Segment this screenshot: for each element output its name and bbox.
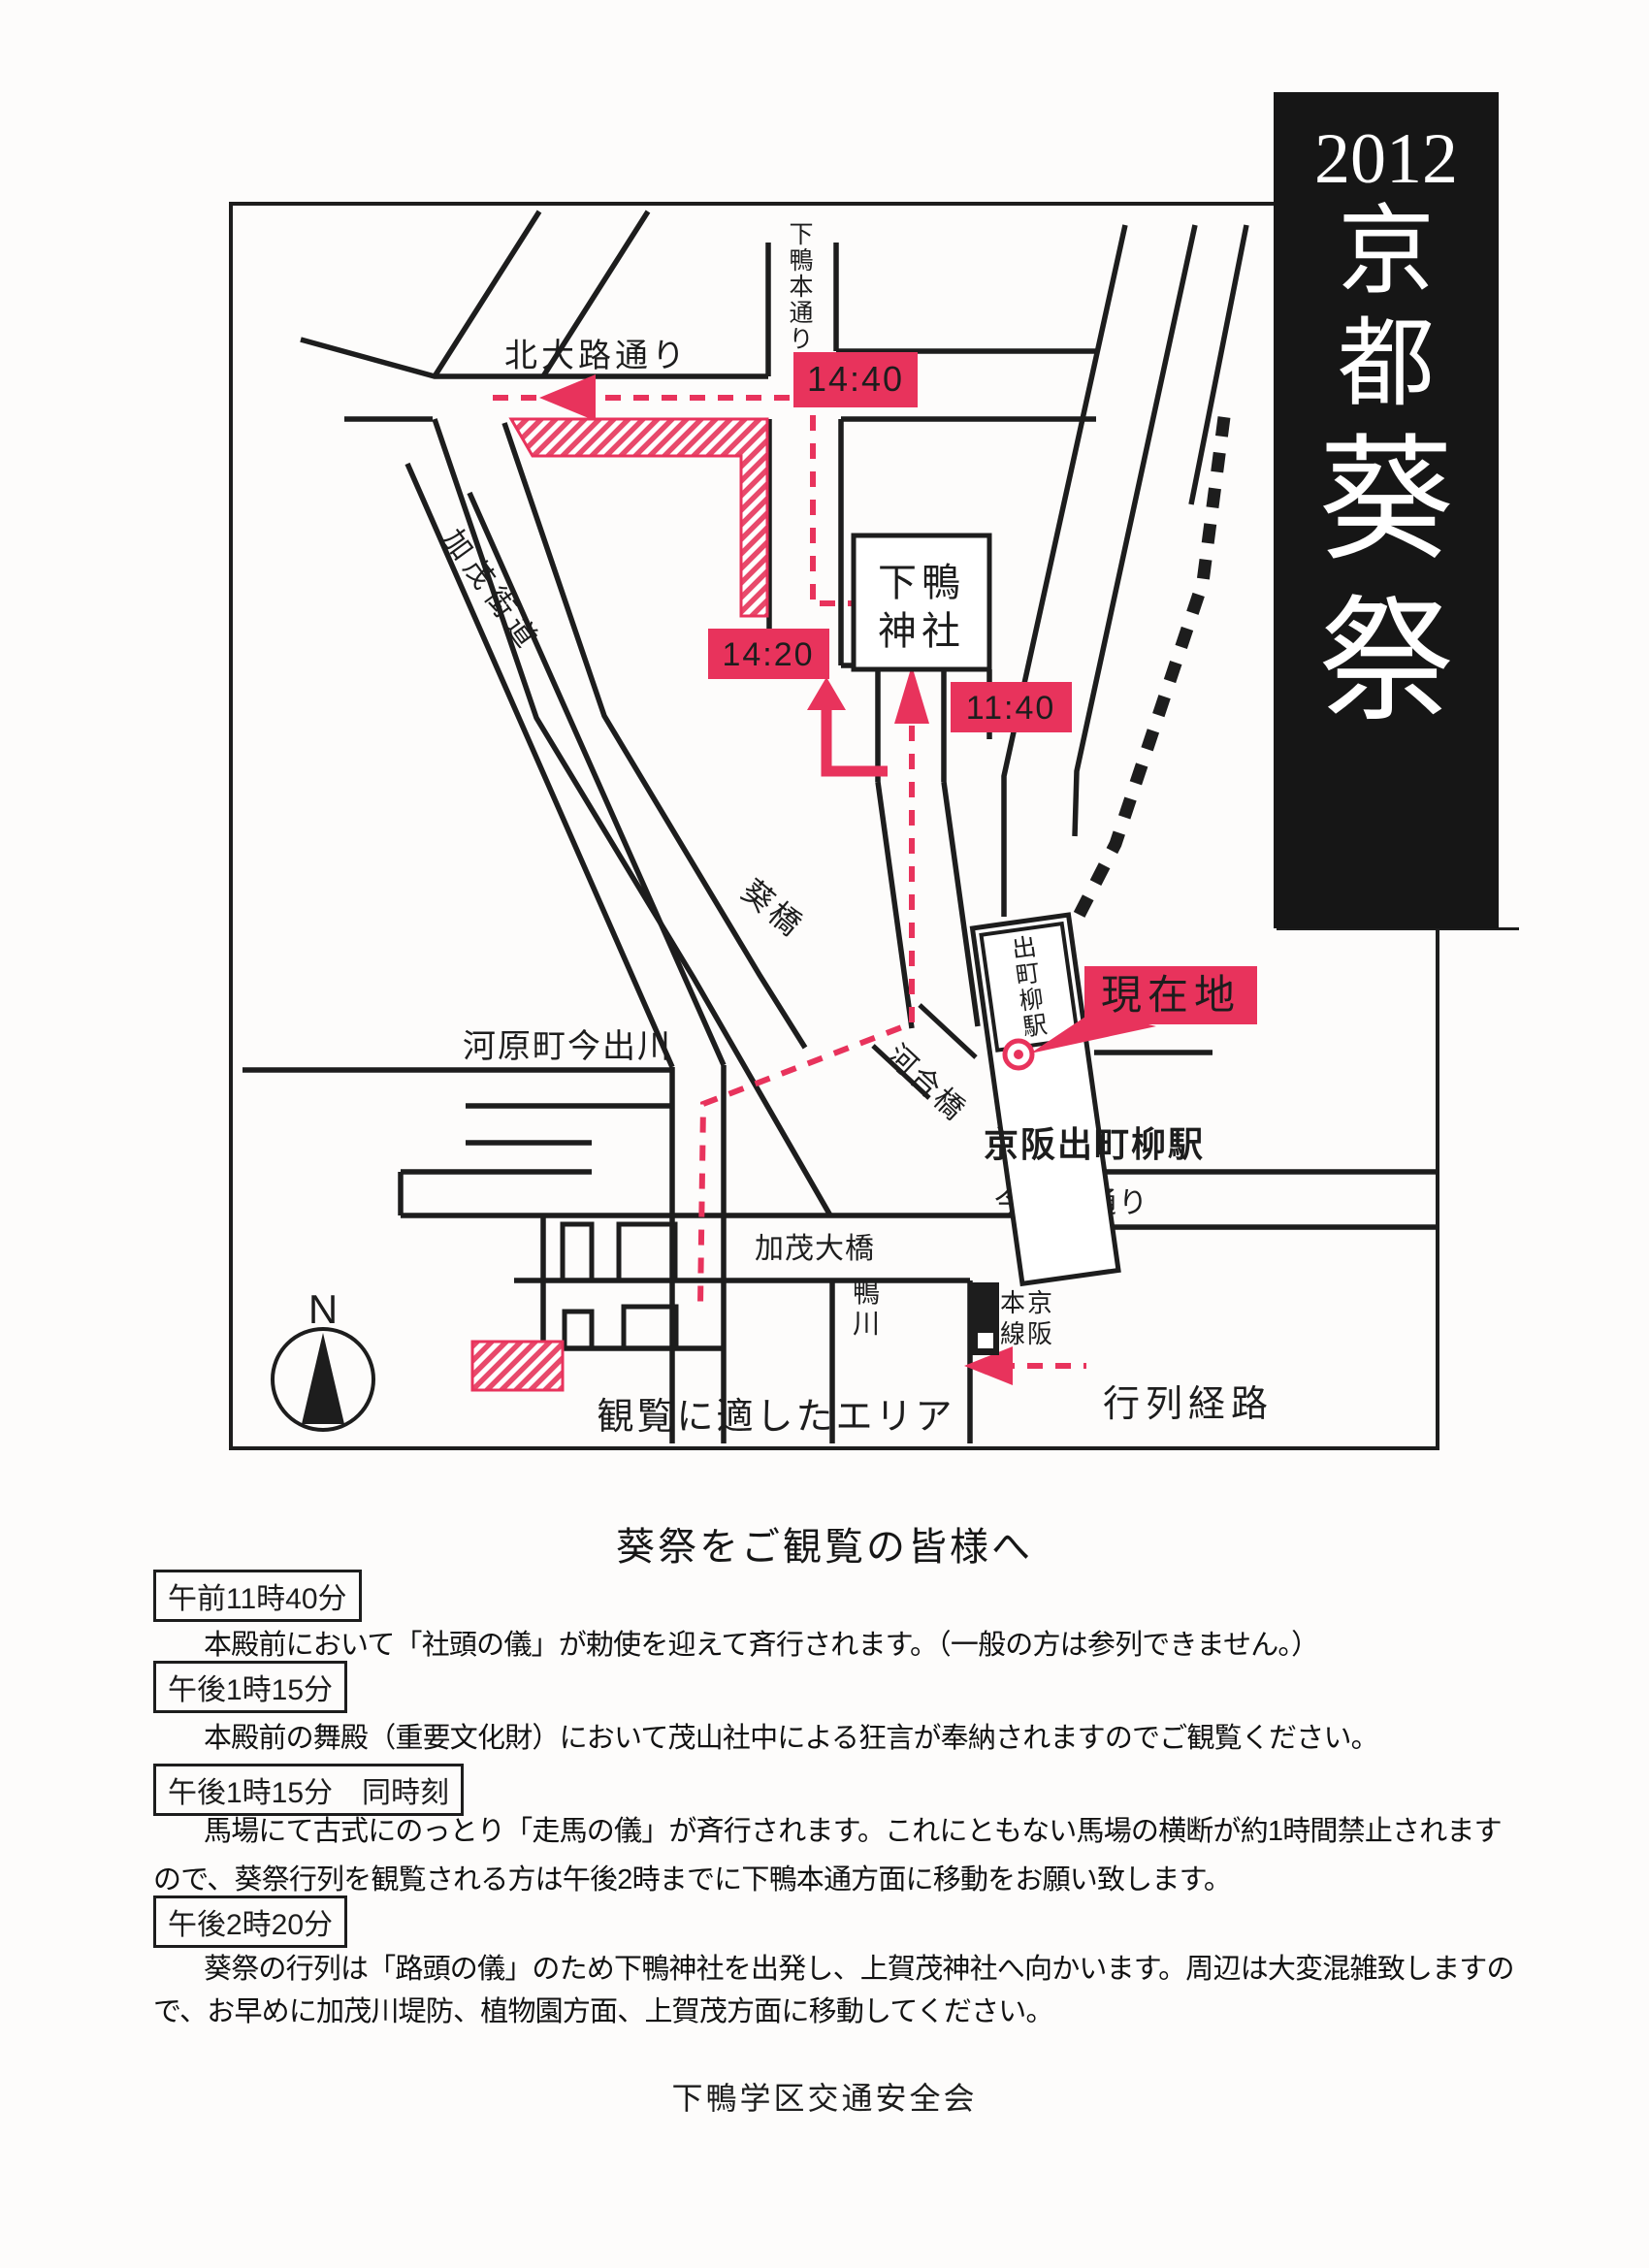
arrow-up-shrine-icon (894, 665, 929, 724)
label-char: 京 (1027, 1288, 1052, 1317)
genzaichi-label: 現在地 (1101, 972, 1241, 1018)
banner-char-aoi: 葵 (1318, 420, 1454, 581)
badge-1140-label: 11:40 (966, 690, 1056, 727)
banner-char-kyo: 京 (1338, 195, 1435, 308)
label-char: 川 (853, 1309, 880, 1339)
label-kitaoji: 北大路通り (504, 338, 689, 374)
notice-heading: 葵祭をご観覧の皆様へ (0, 1515, 1649, 1571)
notice-line: 馬場にて古式にのっとり「走馬の儀」が斉行されます。これにともない馬場の横断が約1… (204, 1808, 1502, 1849)
notice-line: 本殿前の舞殿（重要文化財）において茂山社中による狂言が奉納されますのでご観覧くだ… (204, 1715, 1378, 1756)
banner-year: 2012 (1314, 123, 1458, 195)
banner-char-matsuri: 祭 (1318, 581, 1454, 742)
notice-line: 本殿前において「社頭の儀」が勅使を迎えて斉行されます。（一般の方は参列できません… (204, 1622, 1318, 1663)
time-box-1: 午前11時40分 (153, 1570, 362, 1622)
time-box-4: 午後2時20分 (153, 1895, 347, 1948)
time-box-2: 午後1時15分 (153, 1661, 347, 1713)
road-kawaramachi (407, 464, 724, 1443)
label-keihan-honsen: 京 阪 本 線 (1000, 1288, 1052, 1348)
label-shimogamo-hondori: 下 鴨 本 通 り (789, 221, 813, 353)
label-kawaibashi: 河合橋 (880, 1039, 972, 1128)
label-char: 下 (789, 221, 813, 248)
notice-line: 葵祭の行列は「路頭の儀」のため下鴨神社を出発し、上賀茂神社へ向かいます。周辺は大… (204, 1946, 1514, 1987)
compass-icon: N (273, 1286, 373, 1430)
legend-route-label: 行列経路 (1103, 1384, 1274, 1425)
keihan-station-notch (978, 1333, 993, 1348)
genzaichi-marker-dot (1014, 1050, 1023, 1059)
arrow-up-depart-icon (807, 677, 846, 710)
parade-route (493, 398, 1086, 1366)
banner-char-to: 都 (1338, 308, 1435, 420)
year-banner: 2012 京 都 葵 祭 (1274, 92, 1499, 928)
label-char: 阪 (1027, 1319, 1052, 1348)
label-keihan-demachiyanagi: 京阪出町柳駅 (984, 1124, 1205, 1164)
label-char: 鴨 (789, 247, 813, 275)
viewing-area-hatch-north (511, 419, 767, 616)
label-char: 本 (1000, 1288, 1025, 1317)
road-kitaoji (301, 340, 1096, 419)
viewing-area-hatch-legend (472, 1342, 563, 1390)
label-char: 駅 (1021, 1011, 1050, 1041)
badge-1440-label: 14:40 (807, 359, 904, 399)
label-char: 鴨 (853, 1278, 880, 1308)
compass-north-label: N (308, 1286, 338, 1332)
label-char: 通 (789, 300, 813, 327)
shimogamo-shrine-line1: 下鴨 (878, 562, 965, 604)
shimogamo-shrine-line2: 神社 (878, 610, 965, 653)
notice-line: で、お早めに加茂川堤防、植物園方面、上賀茂方面に移動してください。 (153, 1989, 1053, 2029)
label-char: り (789, 326, 813, 353)
legend-viewing-area-label: 観覧に適したエリア (597, 1397, 954, 1438)
arrow-west-icon (539, 374, 596, 421)
city-blocks (563, 1224, 676, 1348)
badge-1420-label: 14:20 (722, 636, 814, 673)
label-kawaramachi-imadegawa: 河原町今出川 (463, 1028, 672, 1065)
notice-line: ので、葵祭行列を観覧される方は午後2時までに下鴨本通方面に移動をお願い致します。 (153, 1857, 1231, 1897)
notice-footer: 下鴨学区交通安全会 (0, 2074, 1649, 2119)
label-char: 本 (789, 274, 813, 301)
label-char: 線 (1000, 1319, 1025, 1348)
label-kamo-ohashi: 加茂大橋 (755, 1233, 875, 1265)
label-kamogawa: 鴨 川 (853, 1278, 880, 1339)
scanned-flyer: 14:40 14:20 11:40 下鴨 神社 北大路通り 下 鴨 本 通 り … (0, 0, 1649, 2268)
label-aoibashi: 葵橋 (735, 873, 811, 945)
